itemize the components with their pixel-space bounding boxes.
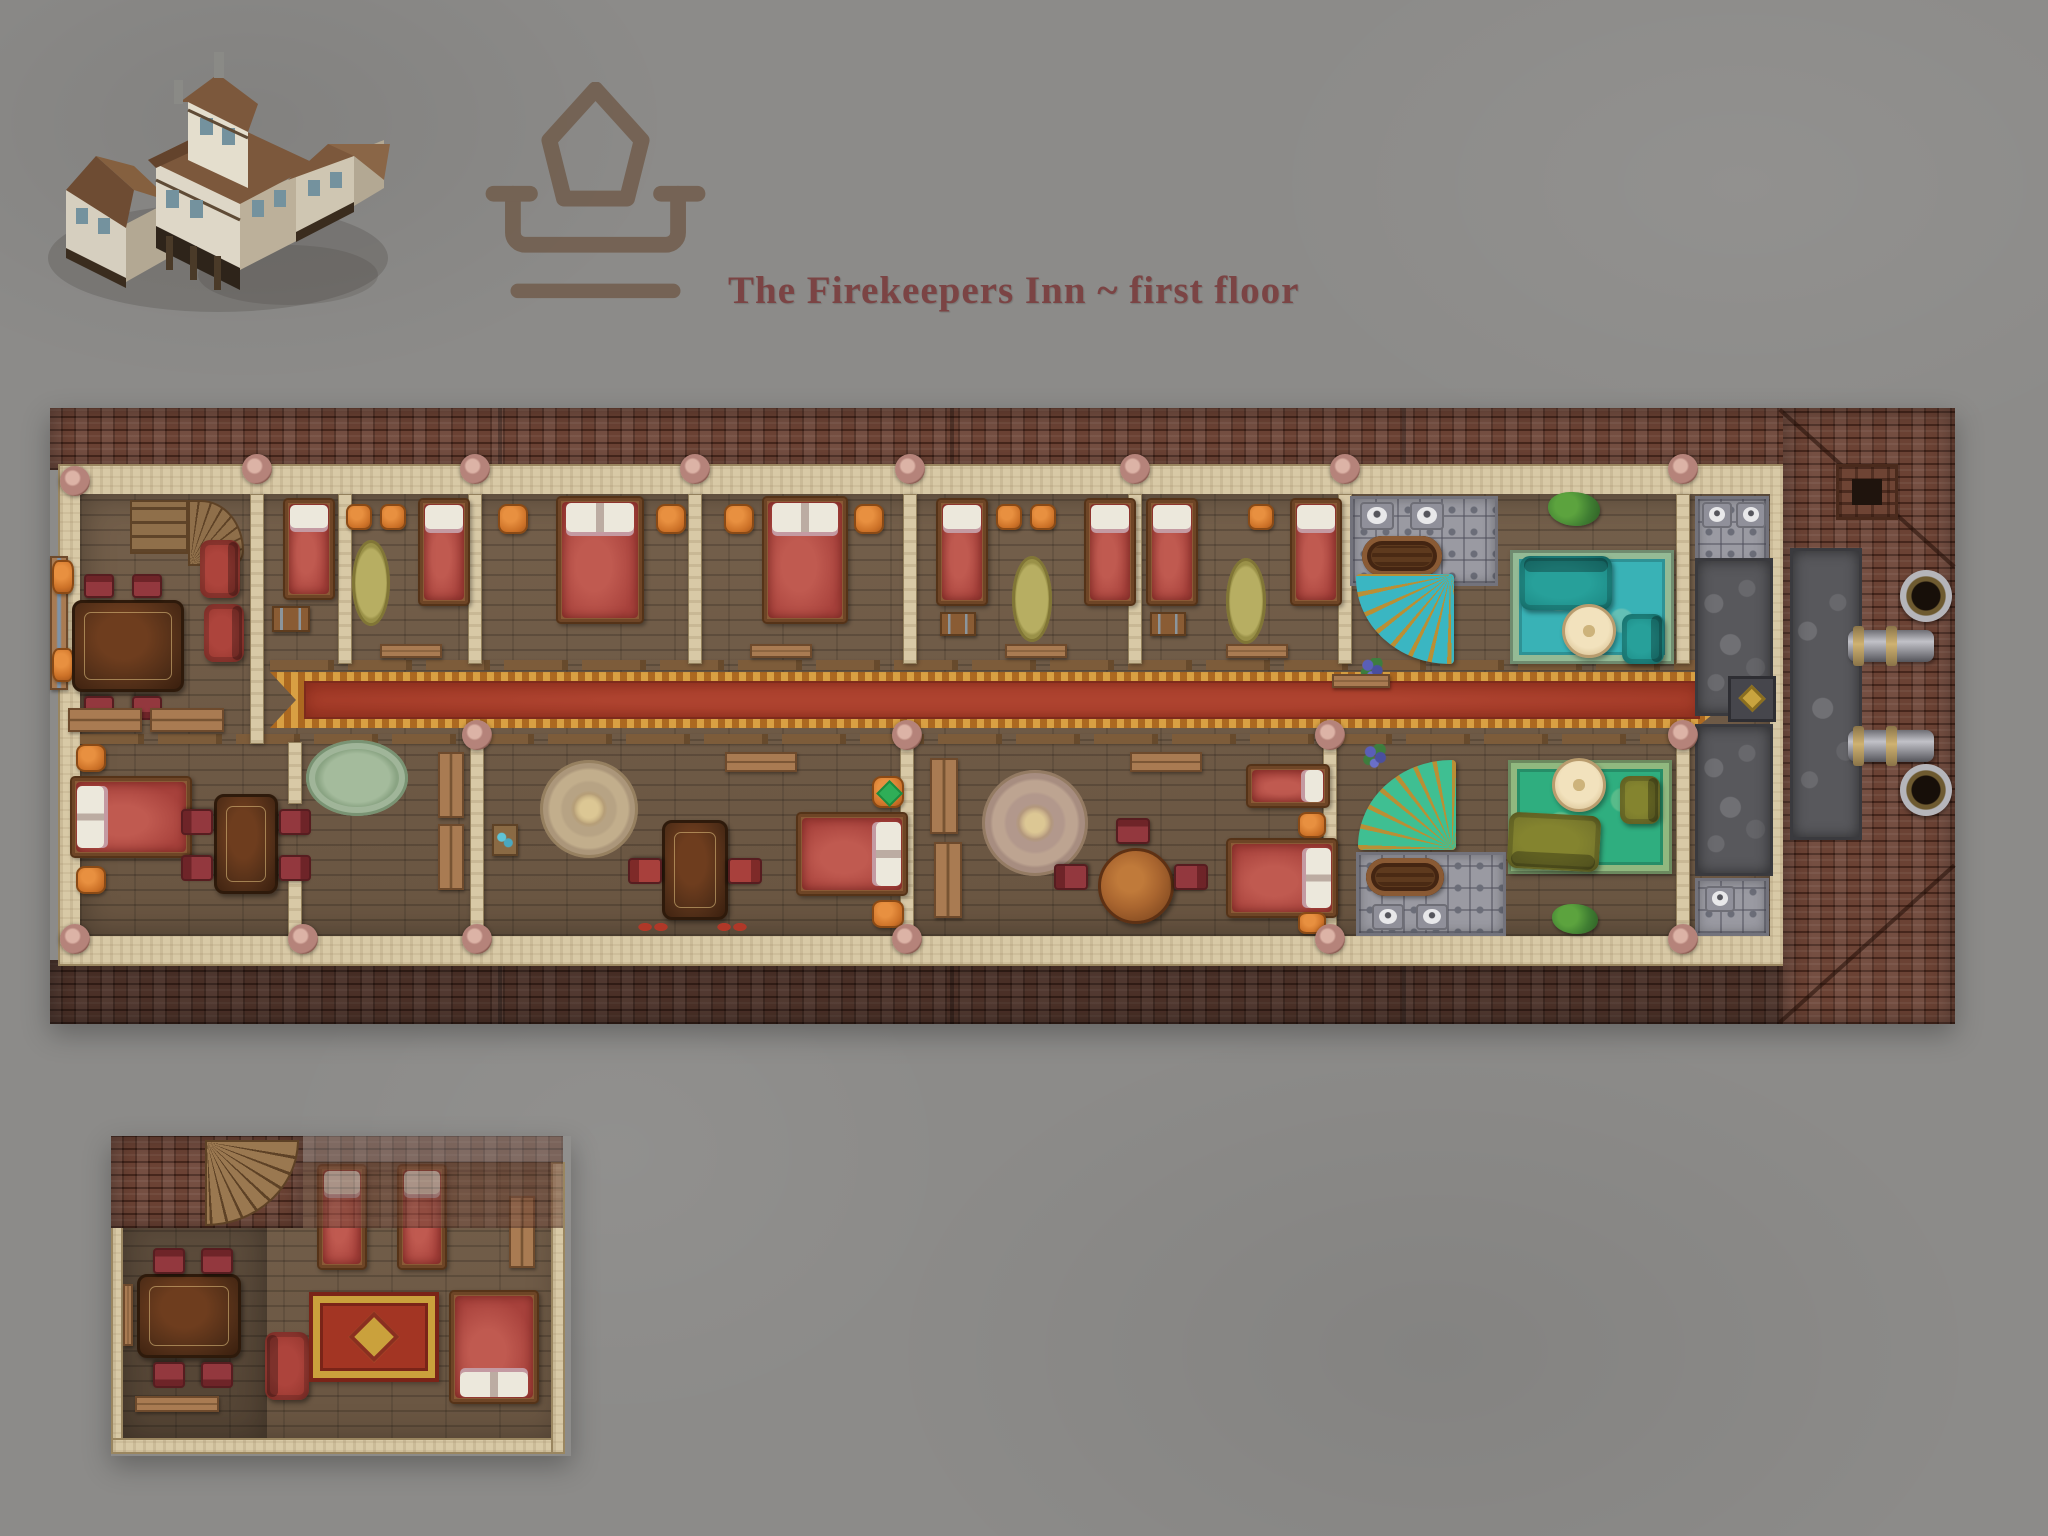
room-divider — [1676, 494, 1690, 664]
room-divider — [470, 742, 484, 936]
log-cap — [892, 720, 922, 750]
floor-cushion — [872, 900, 904, 928]
single-bed — [1084, 498, 1136, 606]
bottle-cabinet — [492, 824, 518, 856]
floor-cushion — [656, 504, 686, 534]
chair — [201, 1248, 233, 1274]
inn-exterior-illustration — [38, 40, 398, 325]
green-oval-rug — [306, 740, 408, 816]
pipe-vent — [1900, 764, 1952, 816]
bench — [934, 842, 962, 918]
toilet — [1416, 904, 1448, 930]
olive-rug — [1226, 558, 1266, 644]
floor-cushion — [854, 504, 884, 534]
log-cap — [1120, 454, 1150, 484]
armchair — [200, 540, 240, 598]
chair — [279, 855, 311, 881]
log-cap — [1668, 454, 1698, 484]
slippers — [714, 920, 750, 934]
floor-cushion — [724, 504, 754, 534]
olive-rug — [1012, 556, 1052, 642]
sofa — [265, 1332, 309, 1400]
chimney — [1836, 464, 1898, 520]
page-title: The Firekeepers Inn ~ first floor — [728, 268, 1299, 313]
roof-overhang-translucent — [303, 1136, 563, 1228]
room-divider — [903, 494, 917, 664]
log-cap — [1668, 924, 1698, 954]
log-cap — [1315, 720, 1345, 750]
floor-cushion — [872, 776, 904, 808]
ornate-rug — [309, 1292, 439, 1382]
corridor-upper-wall — [270, 660, 1700, 670]
double-bed — [449, 1290, 539, 1404]
first-floor-plan — [50, 408, 1955, 1024]
chair — [1174, 864, 1208, 890]
bench — [438, 824, 464, 890]
olive-rug — [352, 540, 390, 626]
log-cap — [460, 454, 490, 484]
chair — [279, 809, 311, 835]
chair — [132, 574, 162, 598]
wall-bench — [1226, 644, 1288, 658]
chair — [84, 574, 114, 598]
staircase — [130, 500, 188, 554]
bench — [1332, 674, 1390, 688]
flower-bush — [1362, 744, 1390, 770]
single-bed — [283, 498, 335, 600]
armchair — [1620, 776, 1660, 824]
log-cap — [462, 924, 492, 954]
upper-floor-plan — [111, 1136, 571, 1456]
bench — [930, 758, 958, 834]
table — [662, 820, 728, 920]
pipe-vent — [1900, 570, 1952, 622]
corridor-carpet — [270, 672, 1730, 728]
table — [214, 794, 278, 894]
room-divider — [468, 494, 482, 664]
chair — [728, 858, 762, 884]
floor-cushion — [1248, 504, 1274, 530]
log-cap — [242, 454, 272, 484]
sofa — [1507, 812, 1602, 873]
vent-pipe — [1848, 730, 1934, 762]
chair — [1116, 818, 1150, 844]
common-room-wall — [250, 494, 264, 744]
log-cap — [680, 454, 710, 484]
armchair — [1622, 614, 1664, 664]
floor-cushion — [76, 866, 106, 894]
brazier-emblem-art — [468, 82, 723, 337]
bench — [68, 708, 142, 732]
floor-cushion — [498, 504, 528, 534]
single-bed — [418, 498, 470, 606]
double-bed — [762, 496, 848, 624]
bench — [150, 708, 224, 732]
chest — [1150, 612, 1186, 636]
wall-bench — [750, 644, 812, 658]
chair — [153, 1362, 185, 1388]
double-bed — [70, 776, 192, 858]
log-cap — [1668, 720, 1698, 750]
bottom-wall — [111, 1438, 563, 1454]
log-cap — [895, 454, 925, 484]
floor-cushion — [996, 504, 1022, 530]
log-cap — [60, 466, 90, 496]
single-bed — [1146, 498, 1198, 606]
dining-table — [72, 600, 184, 692]
slippers — [635, 920, 671, 934]
floor-cushion — [76, 744, 106, 772]
chair — [153, 1248, 185, 1274]
room-divider — [288, 742, 302, 804]
round-table — [1562, 604, 1616, 658]
wall-bench — [380, 644, 442, 658]
toilet — [1736, 502, 1766, 528]
floor-cushion — [1030, 504, 1056, 530]
log-cap — [60, 924, 90, 954]
round-table — [1098, 848, 1174, 924]
toilet — [1360, 502, 1394, 530]
bench — [725, 752, 797, 772]
double-bed — [556, 496, 644, 624]
wall-bench — [1005, 644, 1067, 658]
corridor-lower-wall — [80, 734, 1700, 744]
chair — [201, 1362, 233, 1388]
bench — [135, 1396, 219, 1412]
sofa — [1520, 556, 1612, 610]
floor-cushion — [346, 504, 372, 530]
inn-building-art — [38, 40, 398, 325]
roof-bottom-band — [50, 960, 1955, 1024]
bench — [438, 752, 464, 818]
dining-table — [137, 1274, 241, 1358]
chair — [628, 858, 662, 884]
room-divider — [1676, 742, 1690, 936]
log-cap — [462, 720, 492, 750]
seat-cushion — [52, 648, 74, 682]
single-bed — [1246, 764, 1330, 808]
chair — [1054, 864, 1088, 890]
log-cap — [1315, 924, 1345, 954]
armchair — [204, 604, 244, 662]
chimney-stack — [1790, 548, 1862, 840]
vent-pipe — [1848, 630, 1934, 662]
toilet — [1705, 886, 1735, 912]
room-divider — [688, 494, 702, 664]
bathtub — [1366, 858, 1444, 896]
log-cap — [1330, 454, 1360, 484]
toilet — [1372, 904, 1404, 930]
chair — [181, 809, 213, 835]
round-rug — [982, 770, 1088, 876]
toilet — [1702, 502, 1732, 528]
floor-cushion — [380, 504, 406, 530]
toilet — [1410, 502, 1444, 530]
floor-cushion — [1298, 812, 1326, 838]
firekeeper-brazier-emblem — [468, 82, 723, 337]
fireplace-crest — [1728, 676, 1776, 722]
chair — [181, 855, 213, 881]
double-bed — [796, 812, 908, 896]
bench — [1130, 752, 1202, 772]
chest — [272, 606, 310, 632]
double-bed — [1226, 838, 1338, 918]
stone-chimney-core — [1695, 724, 1773, 876]
round-table — [1552, 758, 1606, 812]
log-cap — [288, 924, 318, 954]
seat-cushion — [52, 560, 74, 594]
mandala-rug — [540, 760, 638, 858]
chest — [940, 612, 976, 636]
single-bed — [1290, 498, 1342, 606]
log-cap — [892, 924, 922, 954]
potted-plant — [1552, 904, 1598, 934]
bathtub — [1362, 536, 1442, 576]
wall-bench — [123, 1284, 133, 1346]
single-bed — [936, 498, 988, 606]
